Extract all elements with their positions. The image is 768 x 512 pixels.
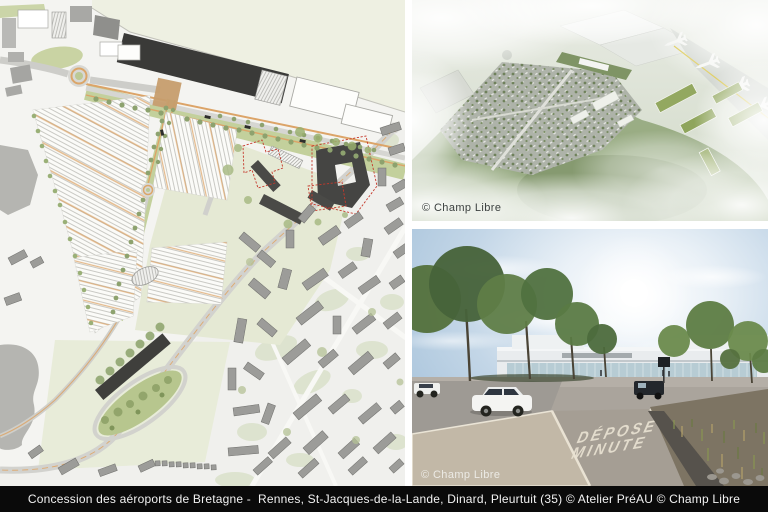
roundabout-west [68, 65, 90, 87]
aerial-view-image [412, 0, 768, 221]
caption-bar: Concession des aéroports de Bretagne - R… [0, 486, 768, 512]
site-plan-panel [0, 0, 405, 486]
street-credit: © Champ Libre [421, 469, 500, 481]
roundabout-center [141, 183, 155, 197]
caption-text: Concession des aéroports de Bretagne - R… [28, 492, 740, 506]
street-view-image: DÉPOSE MINUTE [412, 229, 768, 486]
aerial-credit: © Champ Libre [422, 202, 501, 214]
site-plan-drawing [0, 0, 405, 486]
presentation-board: © Champ Libre [0, 0, 768, 512]
aerial-view-panel: © Champ Libre [412, 0, 768, 221]
parking-field-south-2 [147, 242, 227, 304]
street-view-panel: DÉPOSE MINUTE [412, 229, 768, 486]
